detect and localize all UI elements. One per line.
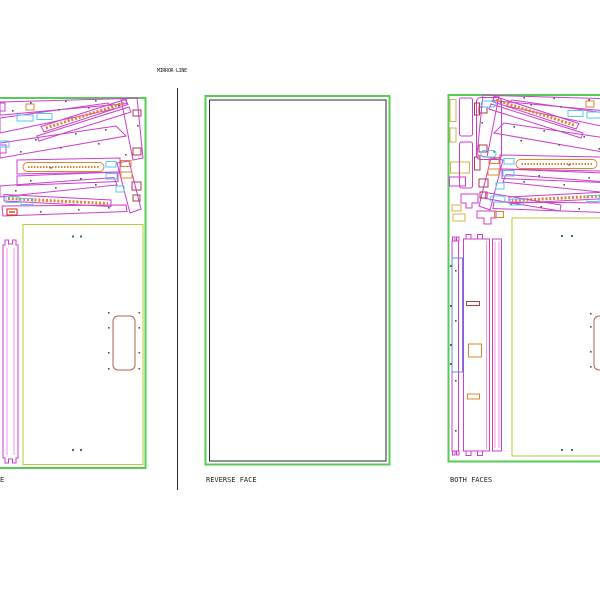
sheet-both-border <box>449 95 600 462</box>
sheet-left <box>0 98 146 469</box>
sheet-left-edge-strip <box>3 240 18 463</box>
left-sheet-label-fragment: E <box>0 476 4 484</box>
reverse-face-label: REVERSE FACE <box>206 476 257 484</box>
sheet-left-drill-dots <box>72 236 140 452</box>
both-faces-label: BOTH FACES <box>450 476 492 484</box>
sheet-reverse-border <box>206 96 390 465</box>
sheet-left-rounded-part <box>113 316 135 370</box>
sheet-both-rounded-part <box>594 316 600 370</box>
drawing-surface <box>0 0 600 600</box>
sheet-left-border <box>0 98 146 468</box>
cad-nesting-drawing: MIRROR LINE E REVERSE FACE BOTH FACES <box>0 0 600 600</box>
sheet-both-drill-dots <box>450 235 592 451</box>
sheet-both-big-part <box>512 218 600 456</box>
sheet-reverse-inner <box>210 100 387 461</box>
column-parts <box>450 98 562 400</box>
mirrored-parts-fan <box>477 95 600 214</box>
sheet-left-big-part <box>23 225 143 465</box>
sheet-reverse-face <box>206 96 390 465</box>
sheet-both-faces <box>449 95 600 462</box>
vertical-strip-parts <box>452 235 502 456</box>
mirror-line-label: MIRROR LINE <box>157 68 187 74</box>
